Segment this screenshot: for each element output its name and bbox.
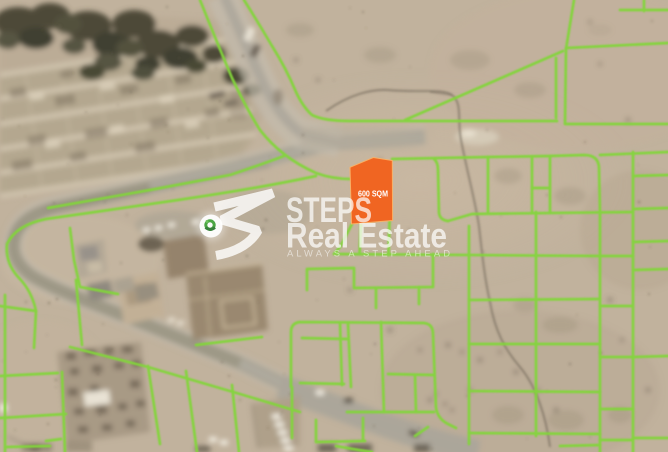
svg-text:ALWAYS A STEP AHEAD: ALWAYS A STEP AHEAD [287, 248, 450, 259]
